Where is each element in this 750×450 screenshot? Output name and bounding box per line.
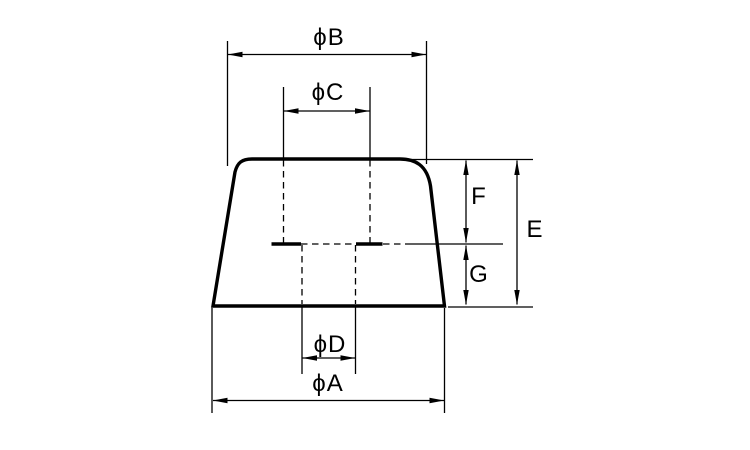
drawing-canvas: ϕB ϕC F G E ϕD ϕA bbox=[0, 0, 750, 450]
label-G: G bbox=[469, 261, 489, 288]
dimension-diagram: ϕB ϕC F G E ϕD ϕA bbox=[0, 0, 750, 450]
label-E: E bbox=[526, 216, 543, 243]
dimension-lines bbox=[213, 55, 517, 401]
hidden-lines bbox=[284, 160, 408, 304]
dimension-labels: ϕB ϕC F G E ϕD ϕA bbox=[312, 24, 544, 397]
label-phiC: ϕC bbox=[312, 79, 345, 106]
label-phiA: ϕA bbox=[312, 370, 343, 397]
label-F: F bbox=[471, 183, 487, 210]
part-outline bbox=[213, 159, 445, 306]
label-phiD: ϕD bbox=[314, 331, 347, 358]
label-phiB: ϕB bbox=[313, 24, 344, 51]
extension-lines bbox=[212, 41, 533, 413]
